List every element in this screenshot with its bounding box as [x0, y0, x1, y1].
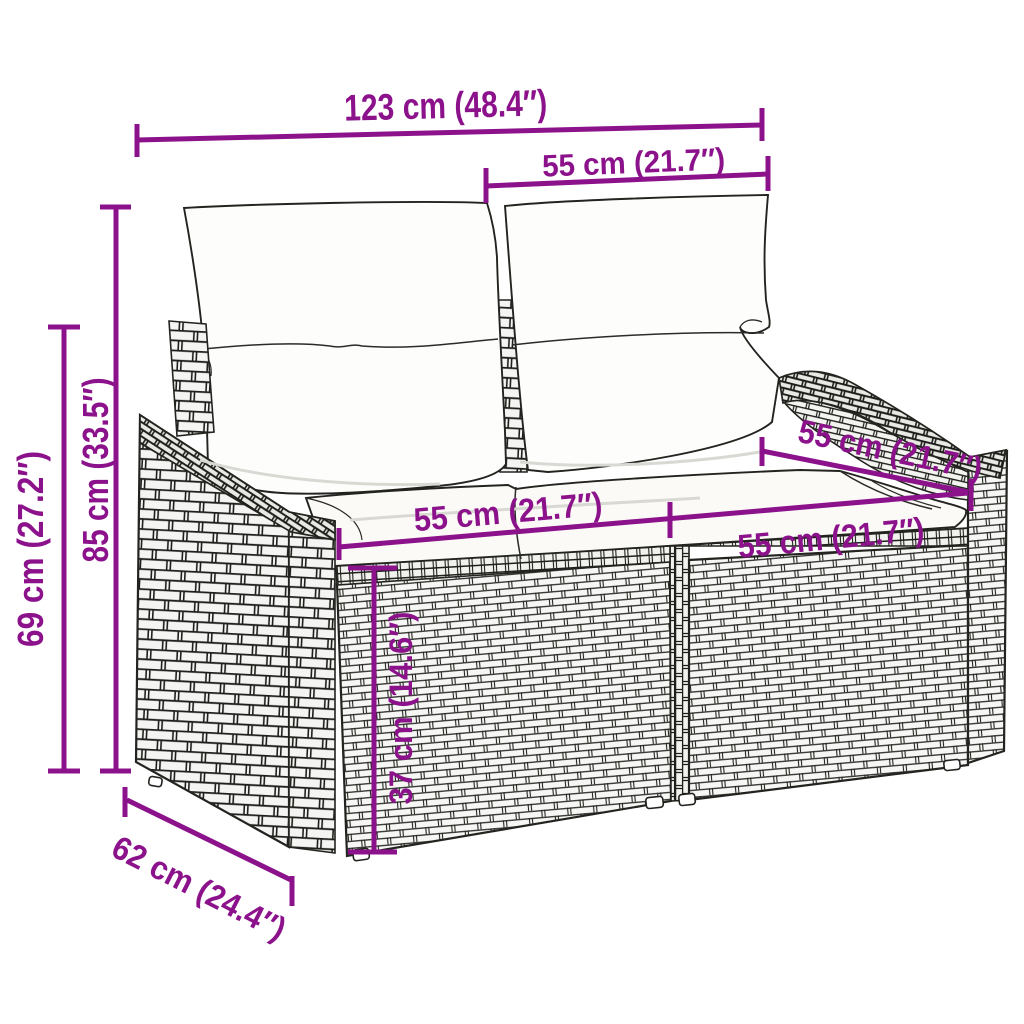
svg-text:55 cm (21.7″): 55 cm (21.7″) — [541, 141, 725, 183]
svg-text:69 cm (27.2″): 69 cm (27.2″) — [10, 451, 51, 647]
svg-text:85 cm (33.5″): 85 cm (33.5″) — [75, 378, 116, 563]
svg-text:37 cm (14.6″): 37 cm (14.6″) — [383, 612, 419, 805]
svg-text:123 cm (48.4″): 123 cm (48.4″) — [344, 82, 548, 128]
